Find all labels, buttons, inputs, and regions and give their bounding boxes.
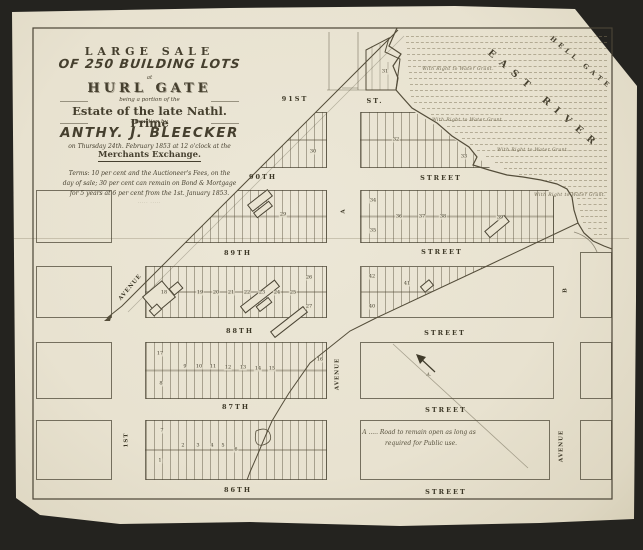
river-ripple-line — [422, 108, 607, 109]
lot-number: 14 — [254, 367, 262, 372]
river-ripple-line — [407, 54, 607, 55]
map-area: LARGE SALE OF 250 BUILDING LOTS at HURL … — [0, 0, 643, 550]
street-label-90th-west: 90TH — [249, 174, 277, 181]
river-ripple-line — [414, 102, 607, 103]
avenue-label: AVENUE — [559, 430, 565, 462]
lot-number: 24 — [273, 291, 281, 296]
river-ripple-line — [439, 120, 607, 121]
river-ripple-line — [563, 186, 607, 187]
river-ripple-line — [447, 126, 607, 127]
city-block — [580, 252, 612, 318]
street-line-91st — [327, 88, 366, 90]
lot-number: 1 — [157, 459, 162, 464]
street-label-91st-west: 91ST — [282, 96, 309, 103]
lot-number: 27 — [305, 305, 313, 310]
venue-underlined: Merchants Exchange. — [98, 150, 201, 162]
river-ripple-line — [408, 60, 607, 61]
terms-line-1: Terms: 10 per cent and the Auctioneer's … — [52, 171, 247, 177]
river-ripple-line — [594, 234, 607, 235]
lot-number: 11 — [209, 365, 217, 370]
block-31-lot-lines — [372, 44, 388, 90]
lot-number: 9 — [182, 365, 187, 370]
river-ripple-line — [588, 228, 607, 229]
city-block — [36, 266, 112, 318]
avenue-label: AVENUE — [335, 358, 341, 390]
terms-line-2: day of sale; 30 per cent can remain on B… — [52, 181, 247, 187]
lot-number: 20 — [212, 291, 220, 296]
lot-number: 22 — [243, 291, 251, 296]
lot-number: 10 — [195, 365, 203, 370]
printer-credit-illegible: ····· ····· — [52, 202, 247, 206]
street-label-87th-west: 87TH — [222, 404, 250, 411]
title-line-auctioneer: ANTHY. J. BLEECKER — [52, 127, 247, 141]
river-ripple-line — [544, 180, 607, 181]
lot-number: 8 — [158, 382, 163, 387]
river-ripple-line — [580, 210, 607, 211]
lot-number: 37 — [418, 215, 426, 220]
lot-number: 6 — [233, 448, 238, 453]
title-line-250-lots: OF 250 BUILDING LOTS — [51, 58, 247, 71]
river-ripple-line — [577, 198, 607, 199]
avenue-label: B — [563, 287, 569, 293]
city-block — [36, 420, 112, 480]
river-ripple-line — [583, 222, 607, 223]
terms-line-3: for 5 years at 6 per cent from the 1st. … — [52, 191, 247, 197]
lot-number: 36 — [395, 215, 403, 220]
lot-number: 15 — [268, 367, 276, 372]
river-ripple-line — [406, 42, 607, 43]
lot-number: 21 — [227, 291, 235, 296]
street-label-88th-west: 88TH — [226, 328, 254, 335]
lot-number: 35 — [369, 229, 377, 234]
road-note-line-2: required for Public use. — [385, 441, 457, 447]
river-ripple-line — [409, 78, 607, 79]
avenue-label: A — [341, 208, 347, 213]
lot-number: 32 — [392, 138, 400, 143]
river-ripple-line — [455, 132, 607, 133]
lot-number: 19 — [196, 291, 204, 296]
street-label-88th-east: STREET — [424, 330, 466, 337]
street-label-87th-east: STREET — [425, 407, 467, 414]
city-block — [360, 266, 554, 318]
city-block — [580, 420, 612, 480]
river-ripple-line — [477, 150, 607, 151]
river-ripple-line — [410, 90, 607, 91]
city-block-subdivided — [145, 342, 327, 399]
lot-number: 5 — [220, 444, 225, 449]
curved-block-corner — [574, 232, 597, 252]
street-label-89th-east: STREET — [421, 249, 463, 256]
river-ripple-line — [431, 114, 607, 115]
lot-number: 12 — [224, 366, 232, 371]
lot-number: 34 — [369, 199, 377, 204]
lot-number: 16 — [316, 358, 324, 363]
water-label-hell-gate: HELL GATE — [549, 35, 613, 90]
lot-number: 3 — [195, 444, 200, 449]
lot-number: 7 — [159, 429, 164, 434]
city-block — [36, 342, 112, 399]
subdivided-area — [361, 267, 553, 317]
lot-number: 4 — [209, 444, 214, 449]
street-label-86th-east: STREET — [425, 489, 467, 496]
lot-number: 17 — [156, 352, 164, 357]
city-block — [580, 342, 612, 399]
lot-number: 33 — [460, 155, 468, 160]
block-31-outline — [366, 38, 400, 90]
lot-number: 23 — [258, 291, 266, 296]
street-label-89th-west: 89TH — [224, 250, 252, 257]
street-label-86th-west: 86TH — [224, 487, 252, 494]
street-label-91st-east: ST. — [367, 98, 384, 105]
lot-number: 31 — [381, 70, 389, 75]
lot-number: 18 — [160, 291, 168, 296]
title-line-hurl-gate: HURL GATE — [52, 82, 247, 95]
river-ripple-line — [519, 174, 608, 175]
river-ripple-line — [470, 144, 607, 145]
river-ripple-line — [578, 204, 607, 205]
lot-number: 25 — [289, 291, 297, 296]
lot-number: 42 — [368, 275, 376, 280]
city-block-subdivided — [360, 190, 554, 243]
city-block — [360, 342, 554, 399]
title-line-portion: being a portion of the — [52, 98, 247, 104]
title-line-venue: Merchants Exchange. — [52, 151, 247, 160]
lot-number: 38 — [439, 215, 447, 220]
river-ripple-line — [570, 192, 607, 193]
lot-number: 13 — [239, 366, 247, 371]
street-label-90th-east: STREET — [420, 175, 462, 182]
river-ripple-line — [495, 162, 607, 163]
river-ripple-line — [504, 168, 607, 169]
lot-number: 2 — [180, 444, 185, 449]
lot-number: 39 — [496, 216, 504, 221]
lot-number: 26 — [305, 276, 313, 281]
lot-number: 41 — [403, 282, 411, 287]
river-ripple-line — [407, 48, 607, 49]
road-note-line-1: A ..... Road to remain open as long as — [362, 430, 476, 436]
river-ripple-line — [409, 72, 607, 73]
road-marker-label: A. — [427, 374, 432, 379]
river-ripple-line — [411, 96, 607, 97]
title-block: LARGE SALE OF 250 BUILDING LOTS at HURL … — [52, 44, 247, 219]
avenue-a-upper — [329, 32, 358, 90]
avenue-label: AVENUE — [118, 274, 143, 302]
lot-number: 29 — [279, 213, 287, 218]
scanned-map-photo: LARGE SALE OF 250 BUILDING LOTS at HURL … — [0, 0, 643, 550]
river-ripple-line — [462, 138, 607, 139]
avenue-label: 1ST — [124, 433, 130, 448]
river-ripple-line — [581, 216, 607, 217]
lot-number: 40 — [368, 305, 376, 310]
river-ripple-line — [486, 156, 607, 157]
river-ripple-line — [410, 84, 607, 85]
river-ripple-line — [406, 36, 607, 37]
river-ripple-line — [408, 66, 607, 67]
lot-number: 30 — [309, 150, 317, 155]
